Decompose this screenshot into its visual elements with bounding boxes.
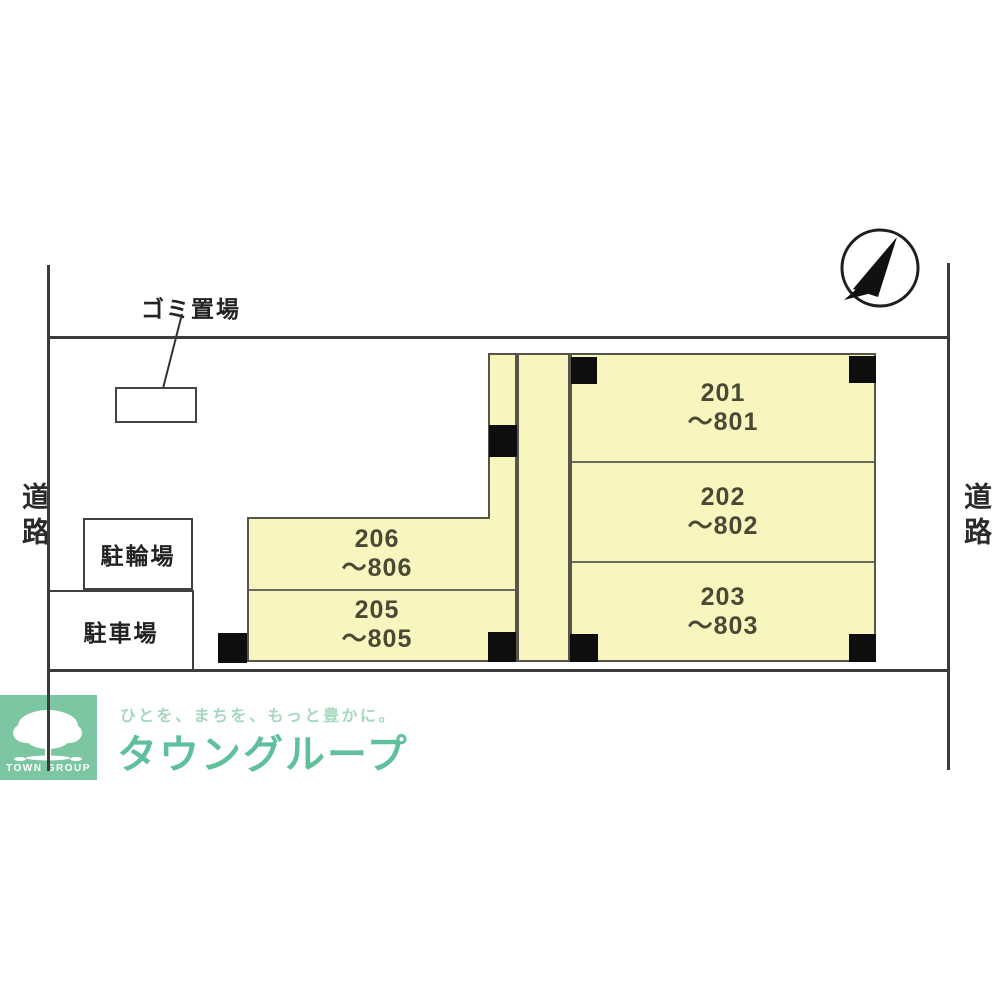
room-203-number: 203 — [701, 583, 746, 612]
room-201-801: 201 ～801 — [570, 355, 876, 461]
room-202-number: 202 — [701, 483, 746, 512]
boundary-line-left — [47, 265, 50, 771]
car-parking-box: 駐車場 — [48, 590, 194, 672]
boundary-line-right — [947, 263, 950, 770]
room-201-range: ～801 — [688, 408, 759, 437]
room-205-range: ～805 — [342, 625, 413, 654]
site-plan-canvas: 道路 道路 ゴミ置場 201 ～801 202 ～802 203 ～803 20… — [0, 0, 1000, 1000]
brand-name: タウングループ — [117, 722, 409, 780]
boundary-line-top — [48, 336, 949, 339]
boundary-line-bottom — [48, 669, 949, 672]
room-205-number: 205 — [355, 596, 400, 625]
room-206-range: ～806 — [342, 554, 413, 583]
bicycle-parking-box: 駐輪場 — [83, 518, 193, 590]
room-202-802: 202 ～802 — [570, 463, 876, 561]
road-label-right: 道路 — [956, 482, 996, 552]
room-201-number: 201 — [701, 379, 746, 408]
bicycle-parking-label: 駐輪場 — [101, 537, 176, 571]
car-parking-label: 駐車場 — [84, 614, 159, 648]
room-202-range: ～802 — [688, 512, 759, 541]
column-bottom-far-left — [218, 633, 247, 663]
room-206-number: 206 — [355, 525, 400, 554]
room-203-range: ～803 — [688, 612, 759, 641]
column-corridor-left-mid — [489, 425, 517, 457]
building-corridor — [517, 353, 570, 662]
room-206-806: 206 ～806 — [247, 518, 507, 589]
room-205-805: 205 ～805 — [247, 590, 507, 660]
room-203-803: 203 ～803 — [570, 563, 876, 660]
compass-north-arrow-icon — [838, 226, 922, 310]
garbage-area-box — [115, 387, 197, 423]
